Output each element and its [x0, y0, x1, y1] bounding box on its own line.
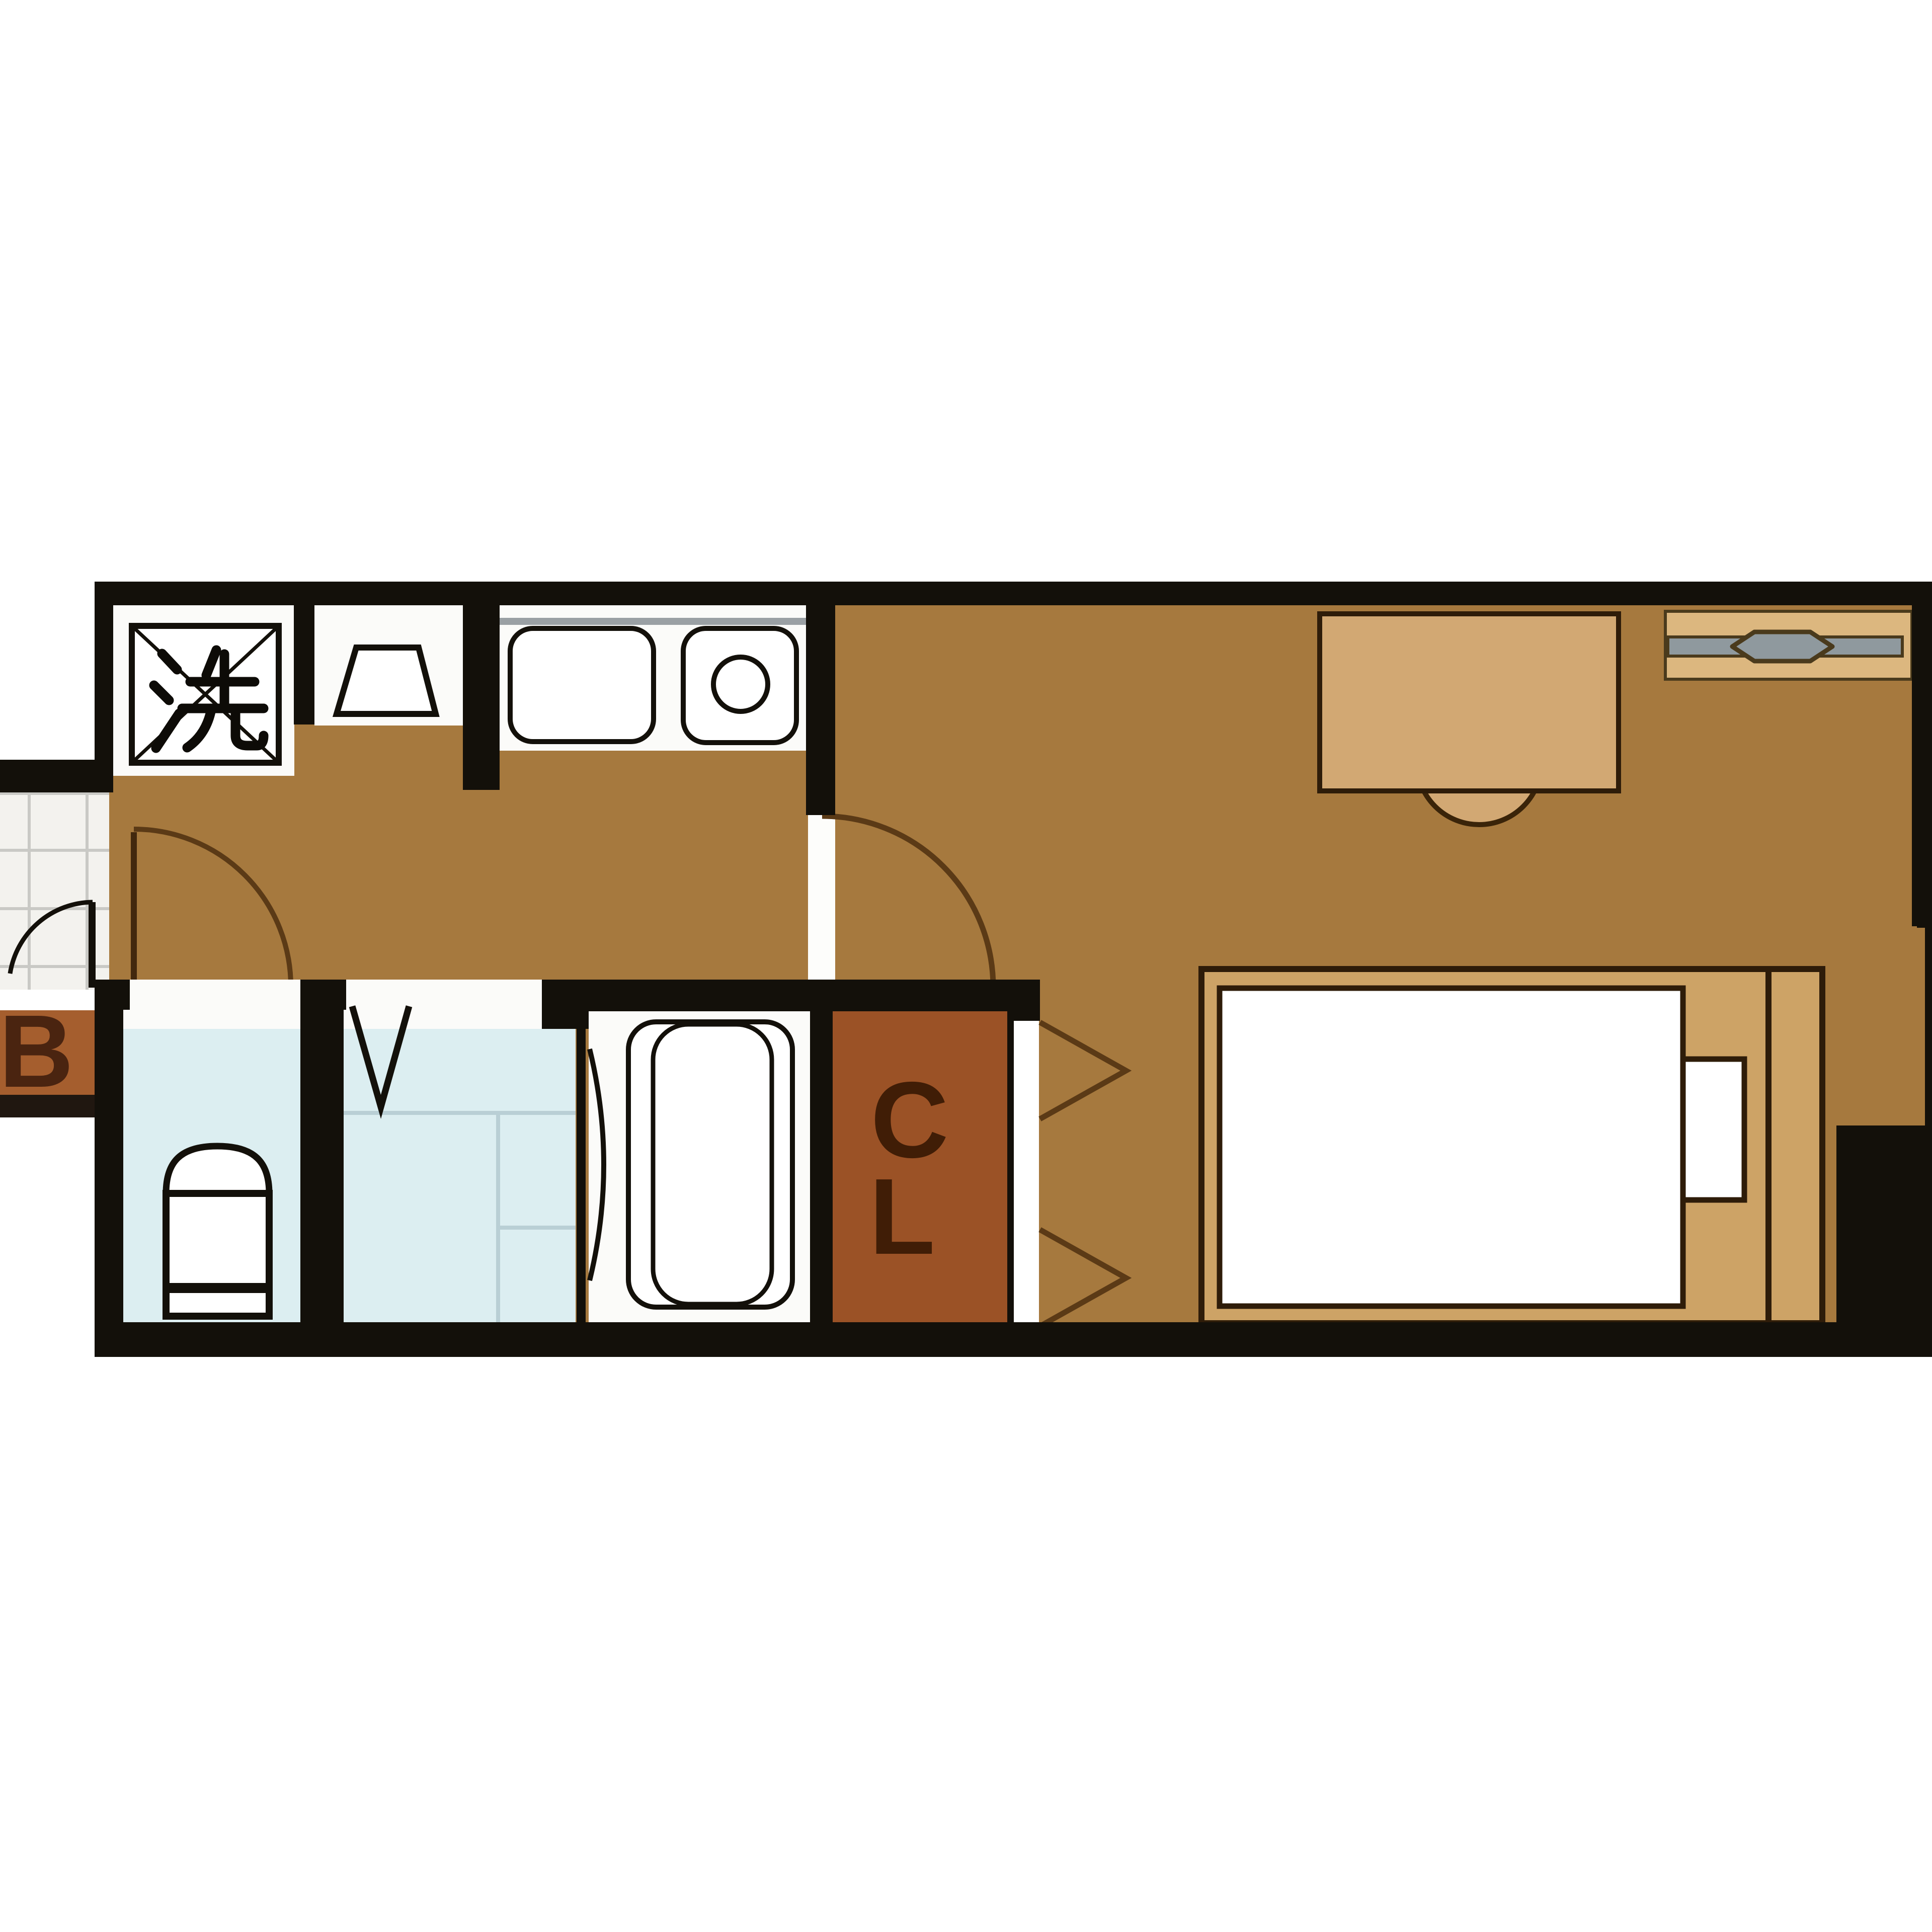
svg-text:L: L [869, 1156, 935, 1277]
svg-text:B: B [0, 994, 73, 1109]
